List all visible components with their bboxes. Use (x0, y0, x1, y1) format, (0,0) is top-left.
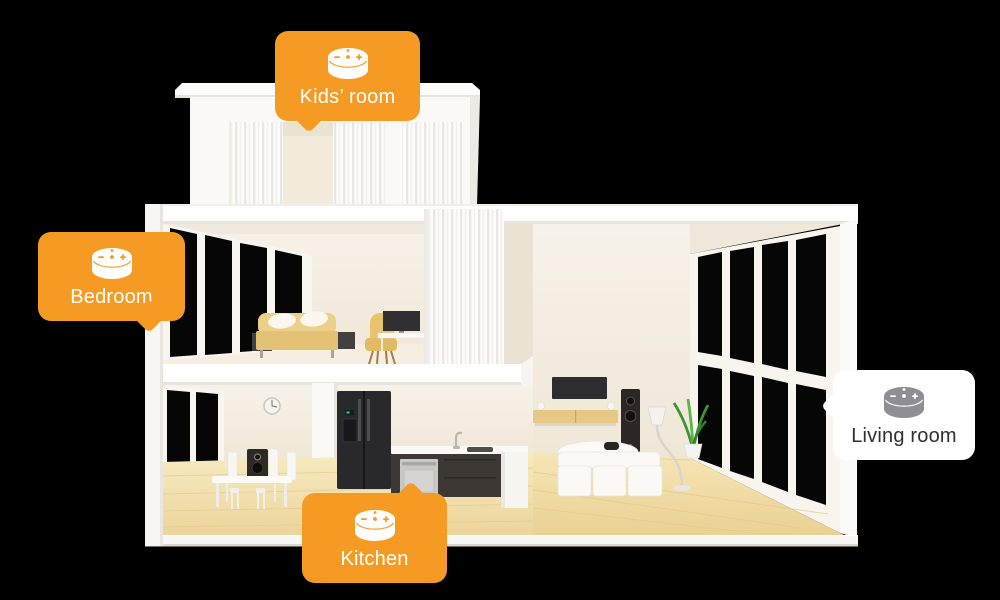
echo-dot-speaker-icon (881, 385, 927, 421)
floorplan-scene: Kids’ room Bedroom Kit (0, 0, 1000, 600)
curtain (231, 122, 283, 206)
echo-dot-speaker-icon (89, 246, 135, 282)
room-callout-living-room[interactable]: Living room (833, 370, 975, 460)
echo-dot-speaker-icon (352, 508, 398, 544)
fridge (337, 391, 391, 489)
callout-label: Living room (851, 426, 957, 446)
table-speaker (247, 449, 268, 477)
sofa (558, 452, 662, 496)
bedroom-area (163, 209, 533, 366)
tv (383, 311, 420, 331)
room-callout-kitchen[interactable]: Kitchen (302, 493, 447, 583)
tv (552, 377, 607, 399)
curtain (333, 122, 386, 206)
room-callout-kids-room[interactable]: Kids’ room (275, 31, 420, 121)
table-speaker-puck (604, 442, 619, 450)
room-divider-curtain (424, 209, 504, 366)
wall-clock (264, 398, 280, 414)
curtain (400, 122, 462, 206)
echo-dot-speaker-icon (325, 46, 371, 82)
callout-label: Bedroom (70, 287, 153, 307)
room-callout-bedroom[interactable]: Bedroom (38, 232, 185, 321)
callout-label: Kitchen (340, 549, 408, 569)
